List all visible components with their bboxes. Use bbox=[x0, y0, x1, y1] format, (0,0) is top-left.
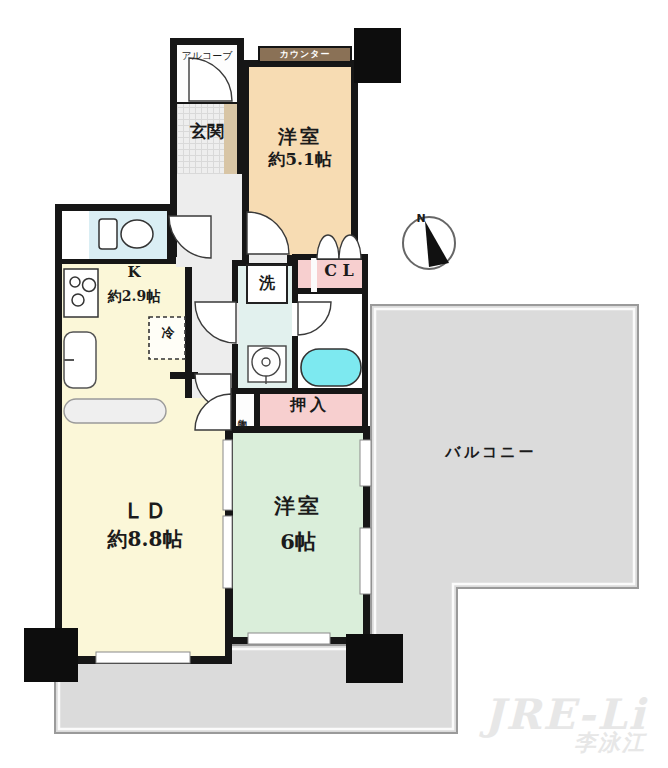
window-living-bottom bbox=[96, 652, 190, 663]
window-bedroom2-right-upper bbox=[360, 440, 371, 486]
window-bedroom2-right-lower bbox=[360, 528, 371, 594]
compass-icon bbox=[403, 217, 455, 269]
pillar-bottom-left bbox=[24, 628, 78, 682]
bedroom1-door-arc bbox=[247, 212, 289, 254]
cl-folding-door-right bbox=[339, 235, 361, 259]
living-name: ＬＤ bbox=[70, 498, 220, 523]
ld-door-arc-lower bbox=[195, 394, 231, 430]
balcony-label: バルコニー bbox=[428, 444, 554, 461]
front-door-arc bbox=[189, 58, 232, 101]
entrance-label: 玄関 bbox=[178, 122, 236, 142]
pillar-bottom-right bbox=[346, 634, 403, 683]
bedroom1-name: 洋室 bbox=[244, 126, 356, 148]
window-bedroom2-bottom bbox=[248, 633, 330, 644]
compass-north-label: N bbox=[413, 213, 429, 226]
bathtub-icon bbox=[301, 349, 361, 386]
toilet-door-arc bbox=[169, 216, 211, 258]
bathroom-door-arc bbox=[298, 302, 331, 335]
floorplan: カウンター bbox=[0, 0, 668, 768]
kitchen-counter-icon bbox=[64, 399, 166, 423]
living-size: 約8.8帖 bbox=[62, 528, 228, 551]
sliding-door-ld-bedroom2-upper bbox=[223, 440, 232, 510]
oshiire-label: 押入 bbox=[258, 396, 362, 414]
washroom-door-arc bbox=[195, 302, 236, 343]
bedroom2-size: 6帖 bbox=[256, 530, 340, 554]
bedroom1-size: 約5.1帖 bbox=[244, 150, 356, 170]
laundry-label: 洗 bbox=[246, 274, 288, 292]
sliding-door-ld-bedroom2-lower bbox=[223, 516, 232, 588]
fridge-label: 冷 bbox=[155, 326, 181, 341]
toilet-icon bbox=[99, 219, 153, 249]
alcove-label: アルコーブ bbox=[174, 50, 240, 62]
closet-cl-label: C L bbox=[314, 262, 364, 280]
washbasin-icon bbox=[248, 346, 286, 384]
fixtures-layer bbox=[0, 0, 668, 768]
watermark-name: 李泳江 bbox=[574, 728, 646, 758]
pillar-top-right bbox=[354, 28, 401, 83]
cl-folding-door-left bbox=[317, 235, 339, 259]
monoire-label: 物入 bbox=[237, 392, 247, 432]
kitchen-name: K bbox=[114, 264, 154, 281]
bedroom2-name: 洋室 bbox=[256, 494, 340, 518]
kitchen-size: 約2.9帖 bbox=[92, 288, 176, 304]
